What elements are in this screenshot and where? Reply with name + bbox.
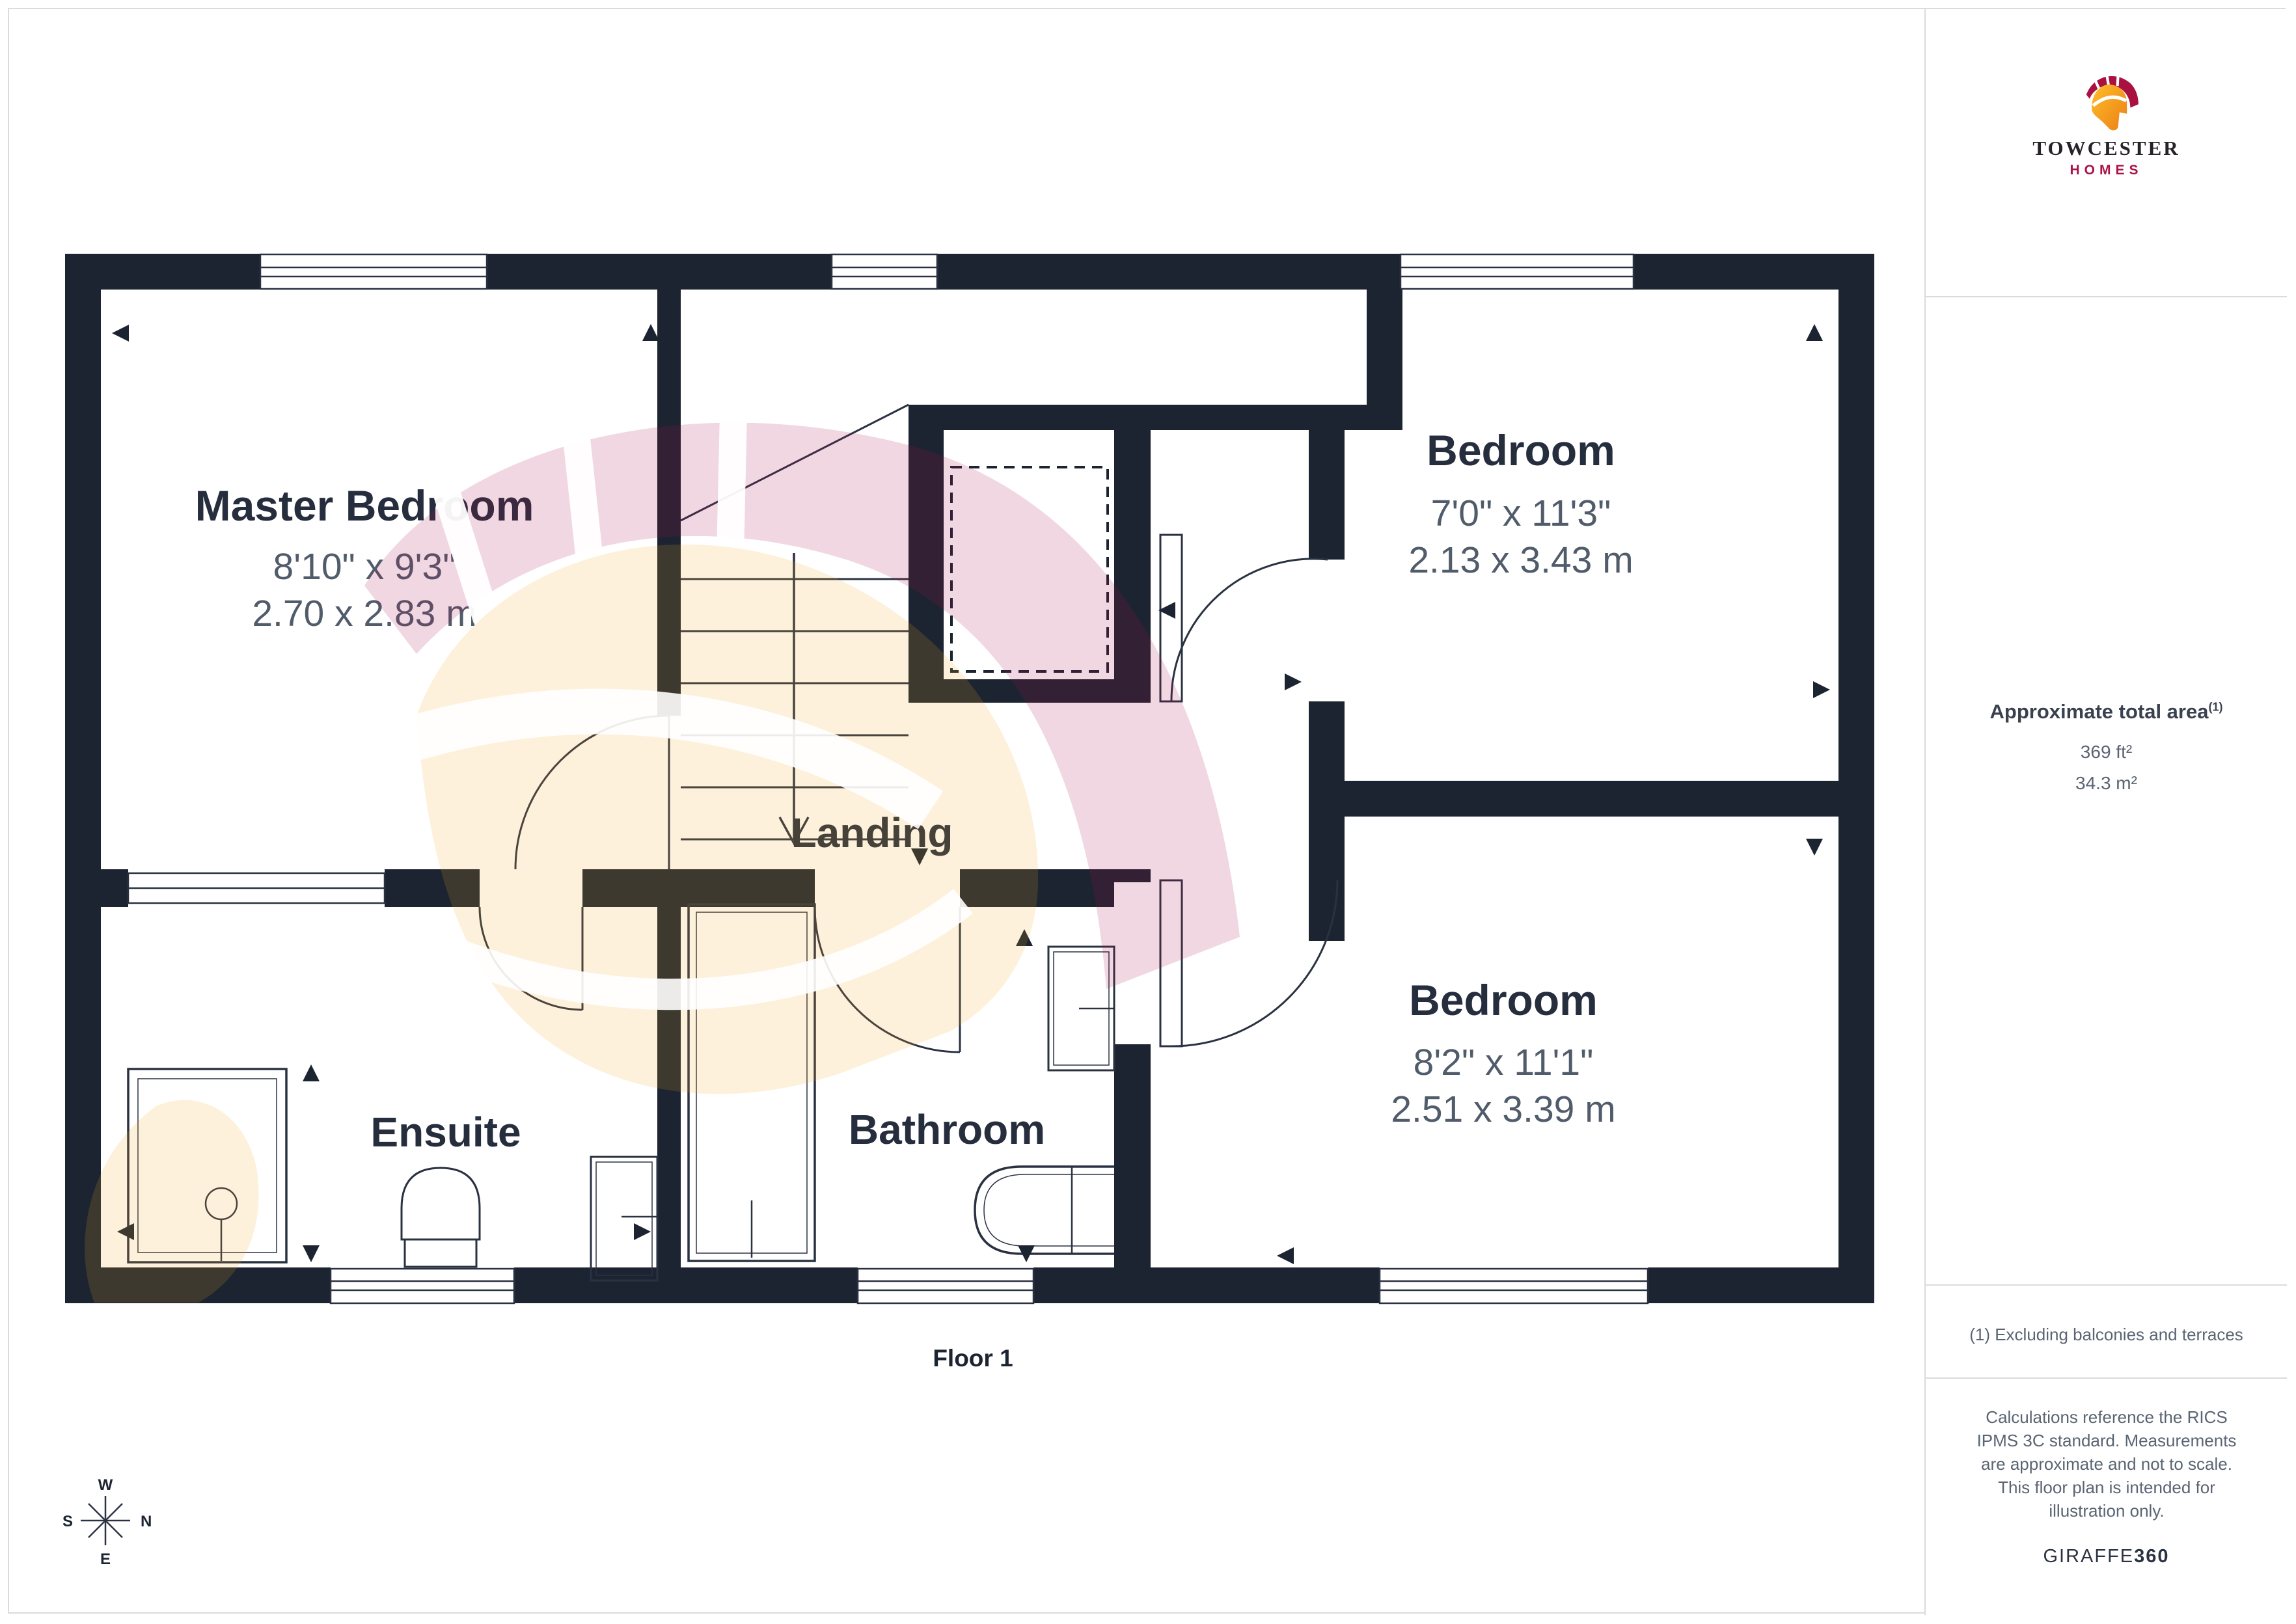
interior-window	[128, 873, 385, 903]
compass-w: W	[98, 1476, 113, 1494]
divider	[1926, 296, 2287, 297]
sink-icon	[591, 1157, 657, 1280]
toilet-icon	[402, 1168, 480, 1267]
brand-360: 360	[2134, 1546, 2169, 1567]
arrow-up-icon	[303, 1064, 320, 1081]
floor-label: Floor 1	[933, 1345, 1013, 1372]
helmet-logo-icon	[2071, 66, 2142, 134]
logo-title: TOWCESTER	[1926, 137, 2287, 160]
room-dims-imperial: 8'2" x 11'1"	[1414, 1042, 1594, 1083]
brand-logo: GIRAFFE360	[1926, 1546, 2287, 1567]
window	[858, 1269, 1033, 1303]
arrow-left-icon	[1277, 1247, 1294, 1264]
room-dims-metric: 2.13 x 3.43 m	[1408, 539, 1633, 581]
compass-e: E	[100, 1550, 111, 1568]
arrow-right-icon	[634, 1223, 651, 1240]
arrow-right-icon	[1285, 673, 1302, 690]
window	[832, 254, 937, 289]
room-dims-imperial: 7'0" x 11'3"	[1431, 493, 1611, 534]
window	[260, 254, 487, 289]
compass-n: N	[141, 1513, 152, 1530]
divider	[1926, 1284, 2287, 1286]
footnote: (1) Excluding balconies and terraces	[1926, 1325, 2287, 1345]
area-title-superscript: (1)	[2208, 701, 2222, 714]
area-sqm: 34.3 m²	[1926, 773, 2287, 794]
arrow-down-icon	[1806, 839, 1823, 856]
room-label: Bathroom	[849, 1106, 1045, 1153]
arrow-down-icon	[303, 1245, 320, 1262]
compass-rose-icon: W N S E	[62, 1476, 152, 1568]
room-dims-metric: 2.51 x 3.39 m	[1391, 1089, 1615, 1130]
window	[1380, 1269, 1648, 1303]
window	[1401, 254, 1633, 289]
door-bedroom-top	[1160, 535, 1328, 701]
area-title: Approximate total area(1)	[1926, 700, 2287, 724]
bathtub-icon	[975, 1167, 1114, 1254]
room-label: Ensuite	[370, 1109, 521, 1156]
area-sqft: 369 ft²	[1926, 742, 2287, 763]
room-label: Bedroom	[1427, 426, 1615, 474]
arrow-up-icon	[1806, 324, 1823, 341]
area-title-text: Approximate total area	[1990, 700, 2209, 723]
brand-name: GIRAFFE	[2043, 1546, 2134, 1567]
compass-s: S	[62, 1513, 73, 1530]
disclaimer: Calculations reference the RICS IPMS 3C …	[1963, 1405, 2250, 1522]
logo-subtitle: HOMES	[1926, 163, 2287, 178]
window	[331, 1269, 514, 1303]
arrow-right-icon	[1813, 681, 1830, 698]
room-label: Bedroom	[1409, 976, 1598, 1024]
arrow-left-icon	[112, 325, 129, 342]
arrow-up-icon	[642, 324, 659, 341]
divider	[1926, 1377, 2287, 1379]
sidebar: TOWCESTER HOMES Approximate total area(1…	[1924, 9, 2287, 1615]
